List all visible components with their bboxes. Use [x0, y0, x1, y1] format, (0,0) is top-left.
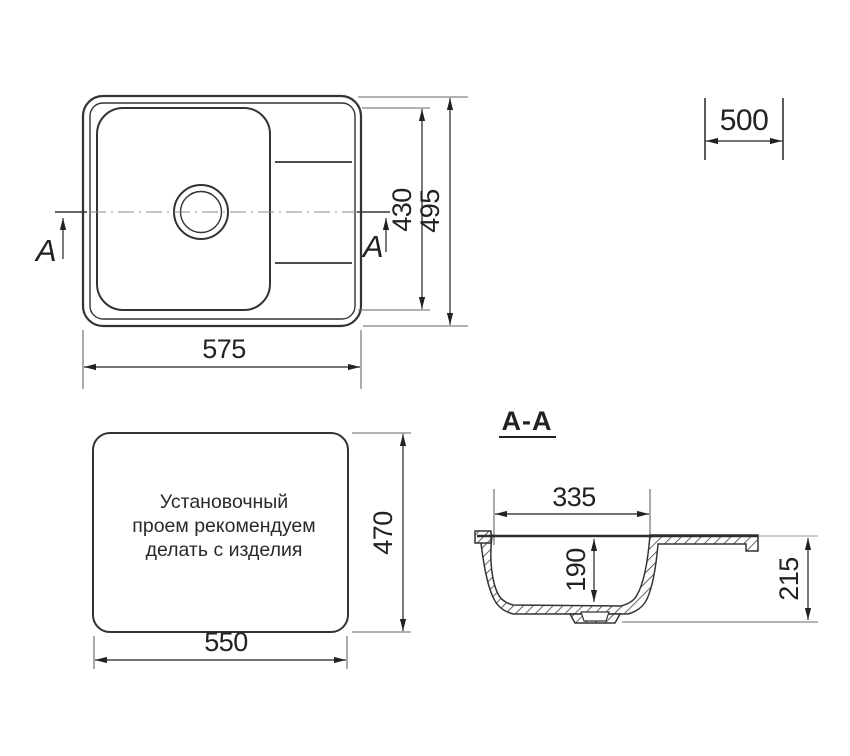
dim-label-470: 470	[368, 511, 398, 555]
dim-label-575: 575	[202, 334, 246, 364]
top-view: A A 575 430 495	[34, 96, 468, 389]
section-marker-left: A	[34, 212, 87, 268]
dim-label-550: 550	[204, 627, 248, 657]
section-title: A-A	[502, 406, 553, 436]
bowl-outline	[97, 108, 270, 310]
section-view: A-A 335 190 215	[475, 406, 818, 623]
dim-label-190: 190	[561, 548, 591, 592]
cutout-note-line3: делать с изделия	[146, 539, 303, 561]
dim-bowl-depth-190: 190	[561, 539, 594, 602]
dim-width-575: 575	[83, 330, 361, 389]
dim-cutout-height-470: 470	[352, 433, 411, 632]
cutout-view: Установочный проем рекомендуем делать с …	[93, 433, 411, 669]
drain-stub-opening	[581, 612, 609, 621]
dim-label-430: 430	[387, 188, 417, 232]
dim-cutout-width-550: 550	[94, 627, 347, 669]
section-body	[481, 535, 758, 614]
sink-technical-drawing: A A 575 430 495	[0, 0, 850, 756]
section-letter-right: A	[361, 229, 383, 264]
cabinet-width-dim: 500	[705, 98, 783, 160]
dim-label-215: 215	[774, 557, 804, 601]
cutout-note-line2: проем рекомендуем	[132, 515, 315, 537]
dim-label-335: 335	[552, 482, 596, 512]
cutout-note-line1: Установочный	[160, 491, 288, 513]
dim-label-500: 500	[720, 104, 769, 137]
section-letter-left: A	[34, 233, 56, 268]
sink-rim	[90, 103, 355, 319]
drawing-svg: A A 575 430 495	[0, 0, 850, 756]
dim-label-495: 495	[415, 189, 445, 233]
